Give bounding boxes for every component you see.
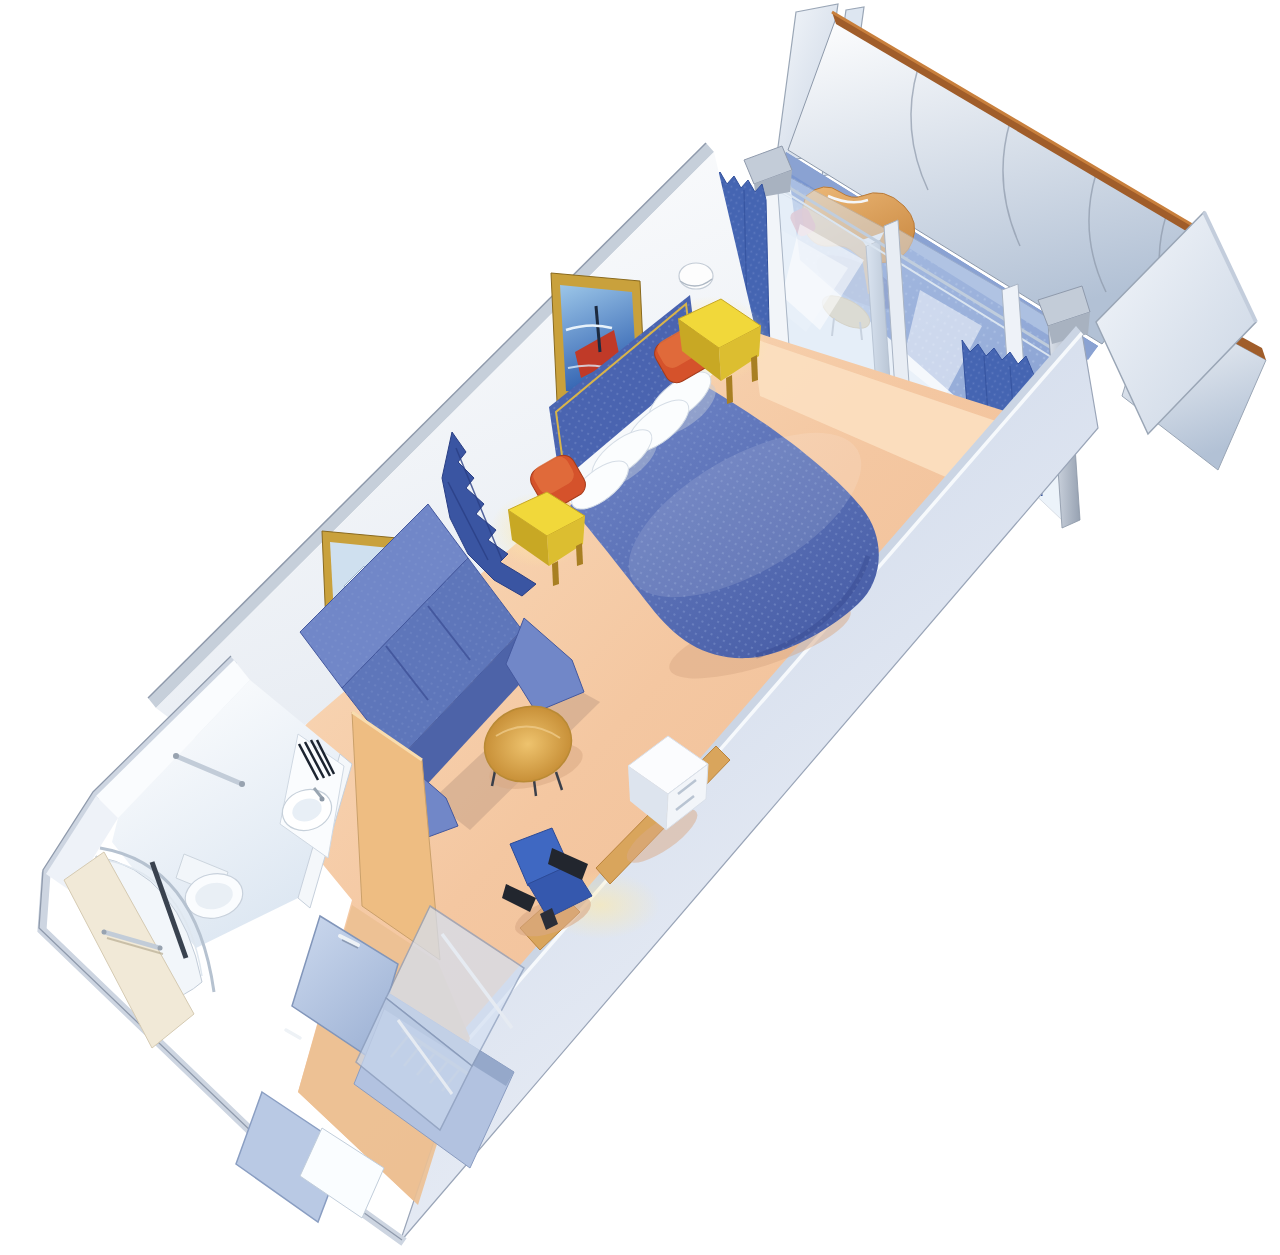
- entry-zone: [236, 905, 524, 1222]
- floorplan-canvas: [0, 0, 1280, 1255]
- door-handle: [286, 1030, 300, 1038]
- grab-bar-mount: [173, 753, 179, 759]
- nightstand-leg: [726, 375, 733, 404]
- nightstand-leg: [751, 355, 758, 382]
- towel-bar-mount: [158, 946, 163, 951]
- towel-bar-mount: [102, 930, 107, 935]
- wall-sconce: [679, 263, 713, 289]
- faucet-spout: [320, 797, 325, 802]
- nightstand-leg: [552, 561, 559, 586]
- nightstand-leg: [576, 543, 583, 566]
- stateroom-cutaway-illustration: [0, 0, 1280, 1255]
- grab-bar-mount: [239, 781, 245, 787]
